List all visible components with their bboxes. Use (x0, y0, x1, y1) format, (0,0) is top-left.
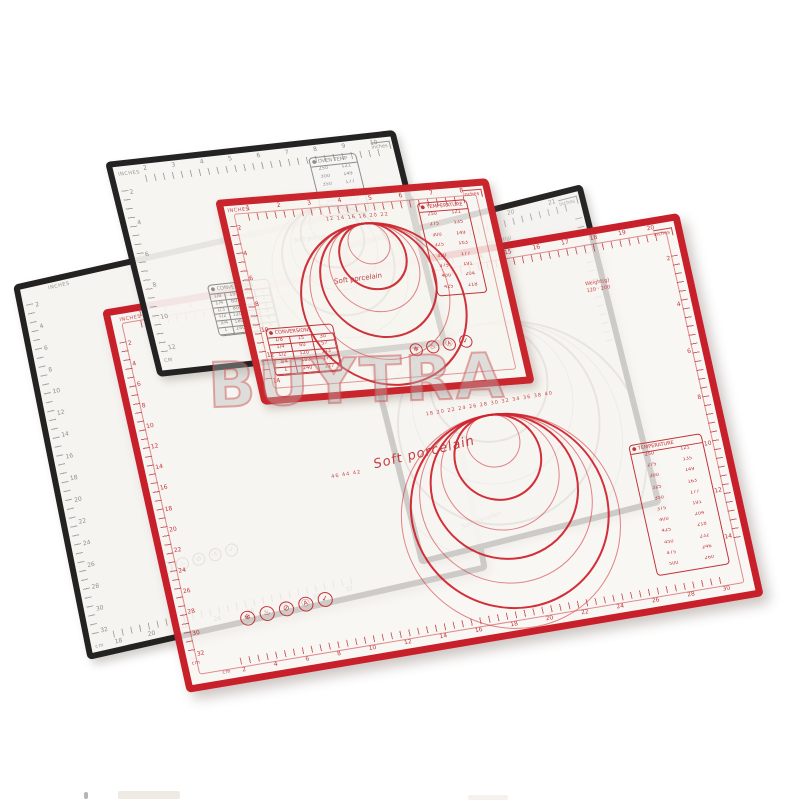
bottom-edge-artifact (118, 791, 180, 799)
ruler-number: 18 (114, 638, 123, 646)
ruler-number: 24 (83, 540, 92, 548)
ruler-number: 22 (78, 518, 87, 526)
ruler-number: 26 (87, 562, 96, 570)
bottom-edge-artifact (84, 792, 88, 799)
ruler-number: 20 (147, 631, 156, 639)
ruler-number: 18 (70, 475, 79, 483)
ruler-number: 6 (44, 345, 53, 353)
inches-label: INCHES (48, 281, 70, 292)
ruler-number: 2 (35, 301, 44, 309)
ruler-number: 28 (91, 583, 100, 591)
product-photo-pastry-mats: INCHES 2468101214161820222426283032 1820… (0, 0, 800, 800)
ruler-number: 16 (65, 453, 74, 461)
rolling-circle (380, 396, 642, 645)
ruler-ticks-left (26, 303, 99, 636)
bottom-edge-artifact (468, 795, 508, 800)
ruler-number: 30 (96, 605, 105, 613)
ruler-number: 32 (100, 627, 109, 635)
cm-label: cm (95, 642, 105, 650)
ruler-number: 14 (61, 431, 70, 439)
buytra-watermark: BUYTRA (207, 339, 508, 422)
ruler-number: 4 (39, 323, 48, 331)
ruler-number: 10 (52, 388, 61, 396)
ruler-numbers-left-cm: 2468101214161820222426283032 (35, 301, 109, 634)
ruler-number: 12 (57, 410, 66, 418)
ruler-number: 20 (74, 496, 83, 504)
ruler-number: 8 (48, 366, 57, 374)
